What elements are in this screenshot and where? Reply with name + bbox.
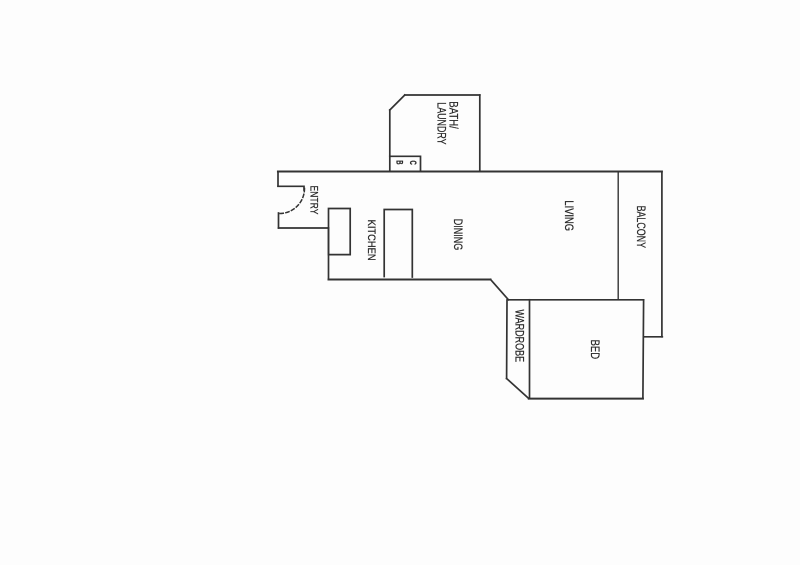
svg-text:C: C (408, 161, 419, 166)
svg-text:KITCHEN: KITCHEN (365, 220, 377, 261)
svg-text:WARDROBE: WARDROBE (512, 310, 526, 363)
svg-text:B: B (394, 160, 405, 165)
svg-text:BALCONY: BALCONY (634, 206, 648, 248)
svg-text:LIVING: LIVING (562, 200, 575, 231)
svg-text:DINING: DINING (450, 219, 464, 250)
svg-text:ENTRY: ENTRY (307, 186, 319, 215)
svg-text:LAUNDRY: LAUNDRY (434, 102, 448, 144)
svg-text:BED: BED (588, 340, 601, 360)
